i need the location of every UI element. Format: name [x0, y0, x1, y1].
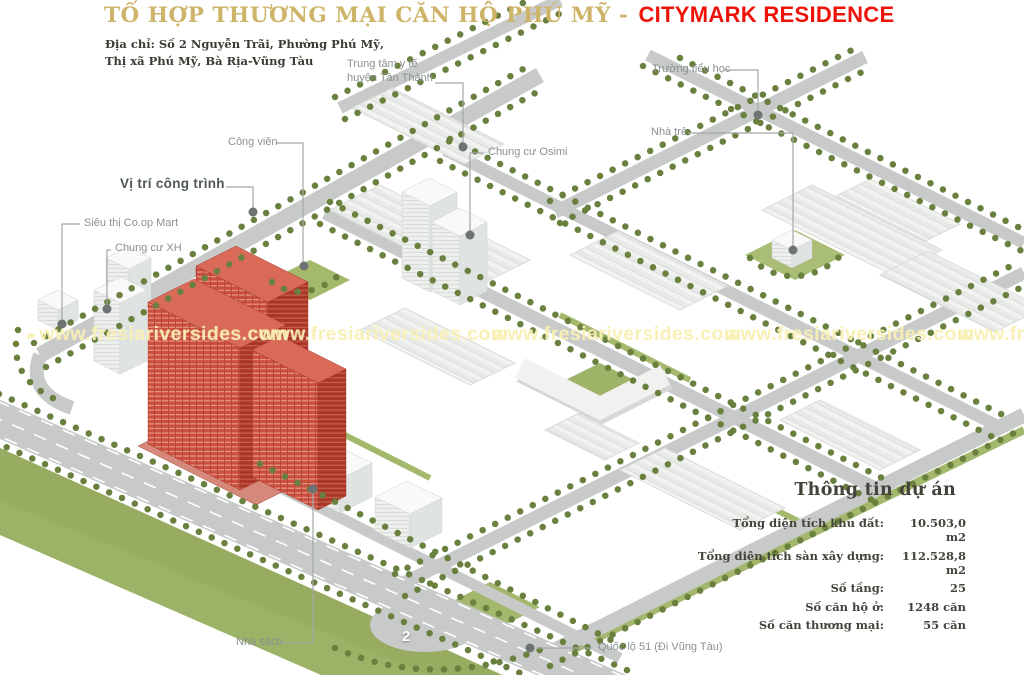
label-social-housing: Chung cư XH [115, 242, 182, 256]
watermark-text: www.fresiariversides.com [492, 323, 742, 345]
info-value: 25 [896, 581, 966, 595]
info-value: 55 căn [896, 618, 966, 632]
label-highway-51: Quốc lộ 51 (Đi Vũng Tàu) [598, 641, 723, 655]
watermark: www.fresiariversides.com [259, 323, 509, 346]
label-bookstore: Nhà sách [236, 636, 282, 650]
address-line-2: Thị xã Phú Mỹ, Bà Rịa-Vũng Tàu [105, 54, 313, 68]
info-label: Số tầng: [646, 581, 884, 595]
info-row: Số tầng: 25 [646, 581, 966, 595]
info-value: 1248 căn [896, 600, 966, 614]
info-row: Tổng diện tích sàn xây dựng: 112.528,8 m… [646, 549, 966, 577]
watermark-text: www.fresiariversides.com [958, 323, 1024, 345]
label-osimi-apartment: Chung cư Osimi [488, 146, 568, 160]
label-site-location: Vị trí công trình [120, 177, 225, 191]
info-row: Số căn thương mại: 55 căn [646, 618, 966, 632]
page-title: TỔ HỢP THƯƠNG MẠI CĂN HỘ PHÚ MỸ - CITYMA… [104, 2, 894, 28]
info-label: Số căn thương mại: [646, 618, 884, 632]
brand-name: CITYMARK RESIDENCE [638, 2, 894, 28]
label-coopmart: Siêu thị Co.op Mart [84, 217, 178, 231]
watermark-text: www.fresiariversides.com [39, 323, 289, 345]
info-label: Số căn hộ ở: [646, 600, 884, 614]
info-label: Tổng diện tích khu đất: [646, 516, 884, 530]
info-value: 112.528,8 m2 [896, 549, 966, 577]
label-park: Công viên [228, 136, 278, 150]
masterplan-page: { "title": { "main": "TỔ HỢP THƯƠNG MẠI … [0, 0, 1024, 675]
address-line-1: Địa chỉ: Số 2 Nguyễn Trãi, Phường Phú Mỹ… [105, 37, 384, 51]
info-label: Tổng diện tích sàn xây dựng: [646, 549, 884, 563]
info-value: 10.503,0 m2 [896, 516, 966, 544]
info-panel-title: Thông tin dự án [646, 480, 956, 500]
watermark: www.fresiariversides.com [958, 323, 1024, 346]
label-primary-school: Trường tiểu học [652, 63, 730, 77]
info-row: Số căn hộ ở: 1248 căn [646, 600, 966, 614]
watermark: ❧www.fresiariversides.com [26, 323, 289, 346]
road-number-badge: 2 [402, 630, 410, 644]
label-kindergarten: Nhà trẻ [651, 126, 687, 140]
watermark: www.fresiariversides.com [725, 323, 975, 346]
watermark: www.fresiariversides.com [492, 323, 742, 346]
project-info-panel: Thông tin dự án Tổng diện tích khu đất: … [646, 480, 966, 637]
info-row: Tổng diện tích khu đất: 10.503,0 m2 [646, 516, 966, 544]
project-address: Địa chỉ: Số 2 Nguyễn Trãi, Phường Phú Mỹ… [105, 36, 384, 70]
watermark-leaf-icon: ❧ [24, 327, 39, 345]
project-title: TỔ HỢP THƯƠNG MẠI CĂN HỘ PHÚ MỸ - [104, 3, 628, 28]
watermark-text: www.fresiariversides.com [725, 323, 975, 345]
watermark-text: www.fresiariversides.com [259, 323, 509, 345]
